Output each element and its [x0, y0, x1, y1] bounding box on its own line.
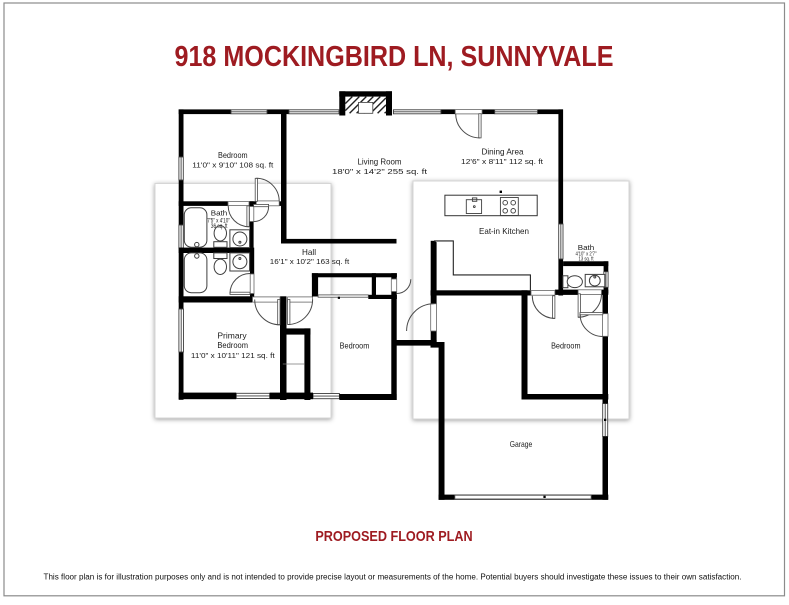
svg-text:Dining Area: Dining Area: [482, 148, 524, 157]
svg-text:918 MOCKINGBIRD LN, SUNNYVALE: 918 MOCKINGBIRD LN, SUNNYVALE: [175, 41, 614, 73]
svg-text:Bedroom: Bedroom: [217, 341, 248, 350]
svg-text:11'0" x 9'10" 108 sq. ft: 11'0" x 9'10" 108 sq. ft: [192, 160, 274, 169]
svg-text:This floor plan is for illustr: This floor plan is for illustration purp…: [44, 572, 742, 581]
svg-text:Bedroom: Bedroom: [551, 341, 581, 350]
svg-text:Primary: Primary: [217, 331, 247, 340]
svg-text:Hall: Hall: [302, 248, 316, 257]
svg-text:Bedroom: Bedroom: [340, 342, 370, 351]
svg-text:Eat-in Kitchen: Eat-in Kitchen: [479, 227, 529, 236]
svg-text:13 sq. ft: 13 sq. ft: [579, 257, 594, 263]
svg-text:11'0" x 10'11" 121 sq. ft: 11'0" x 10'11" 121 sq. ft: [191, 351, 276, 360]
svg-text:Living Room: Living Room: [358, 157, 402, 166]
svg-text:Garage: Garage: [510, 440, 533, 449]
svg-text:18'0" x 14'2" 255 sq. ft: 18'0" x 14'2" 255 sq. ft: [332, 167, 428, 176]
svg-text:12'6" x 8'11" 112 sq. ft: 12'6" x 8'11" 112 sq. ft: [461, 157, 544, 166]
svg-text:16'1" x 10'2" 163 sq. ft: 16'1" x 10'2" 163 sq. ft: [270, 257, 350, 266]
svg-text:36 sq. ft: 36 sq. ft: [211, 224, 228, 230]
svg-text:PROPOSED FLOOR PLAN: PROPOSED FLOOR PLAN: [315, 528, 472, 545]
svg-text:Bath: Bath: [211, 209, 228, 218]
svg-text:Bedroom: Bedroom: [218, 151, 248, 160]
